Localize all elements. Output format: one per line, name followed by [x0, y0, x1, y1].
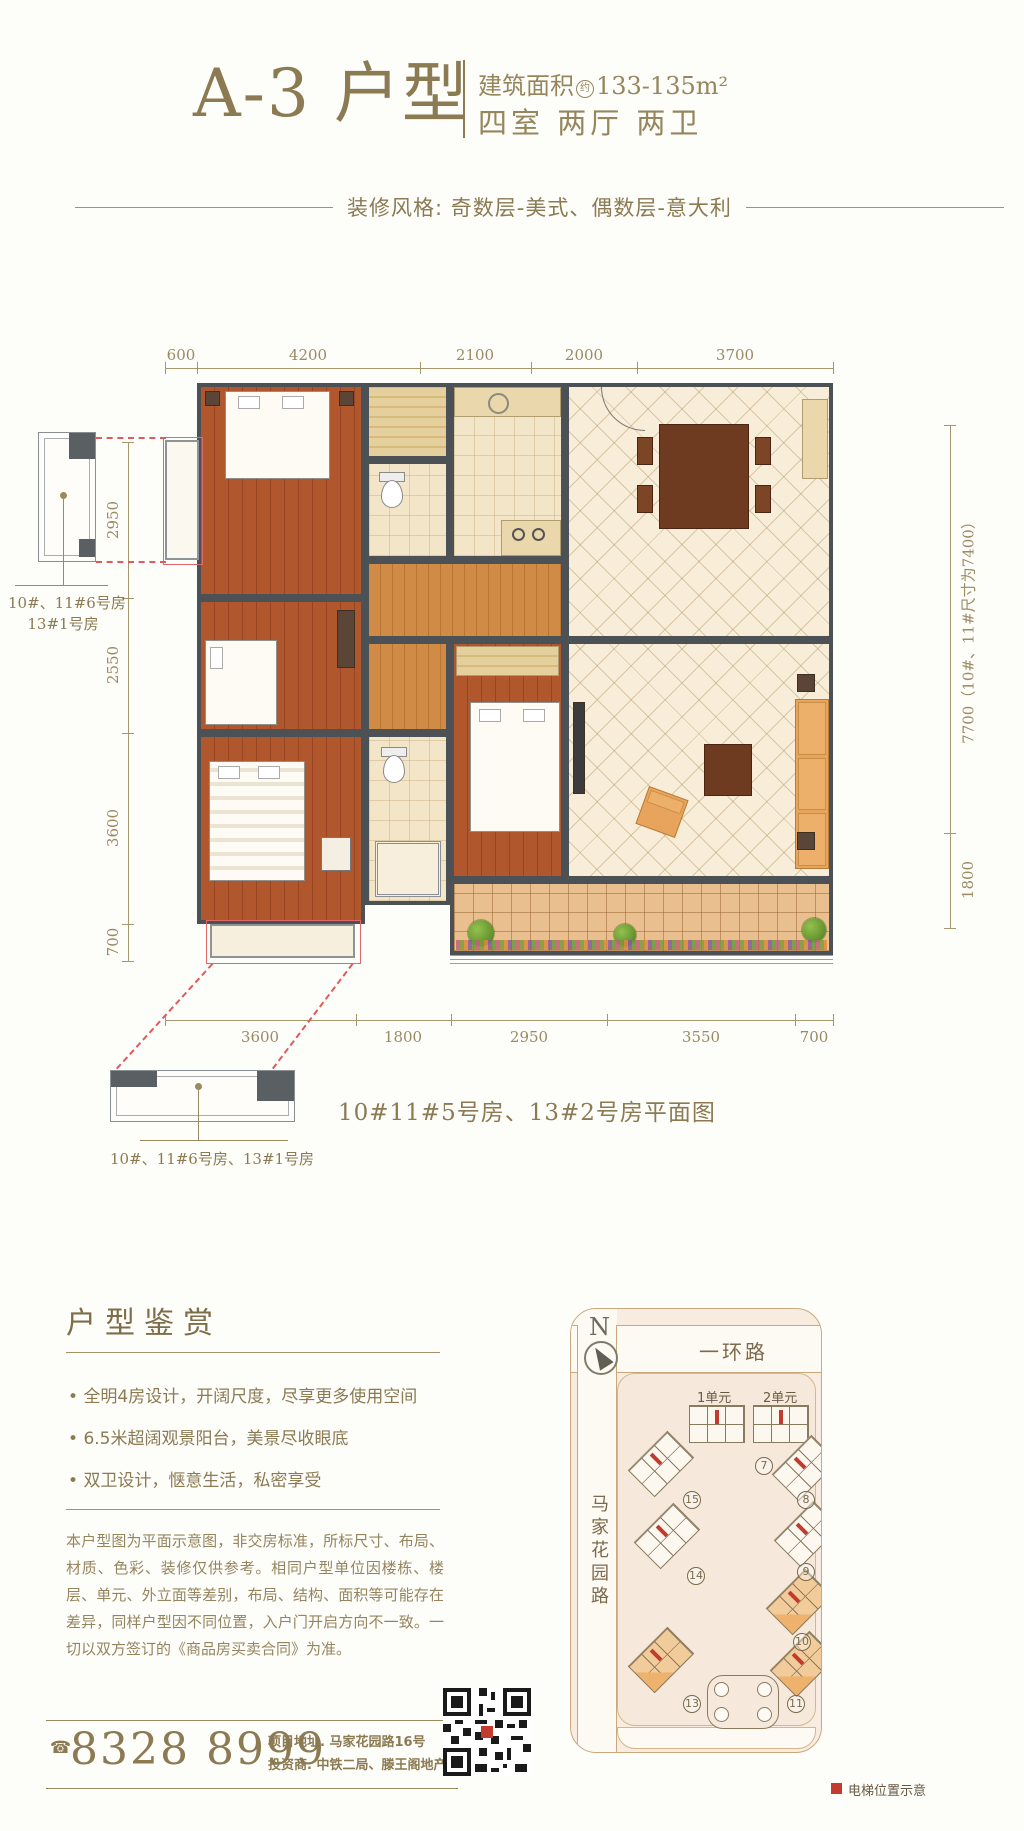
- section-rule: [66, 1509, 440, 1510]
- qr-code: [443, 1688, 531, 1776]
- style-row: 装修风格: 奇数层-美式、偶数层-意大利: [75, 192, 1004, 222]
- pillow: [258, 766, 280, 779]
- terrace: [450, 880, 833, 955]
- bedroom-3: [197, 733, 365, 924]
- road-bottom: [617, 1727, 816, 1749]
- sketch-pointer-line: [198, 1090, 199, 1140]
- dim-label: 3600: [104, 809, 122, 847]
- desk: [321, 837, 351, 871]
- dim-label: 3600: [241, 1028, 279, 1046]
- header-divider: [463, 60, 465, 138]
- north-label: N: [589, 1313, 610, 1341]
- building-number: 8: [797, 1491, 815, 1509]
- bed: [470, 702, 560, 832]
- contact-rule-top: [46, 1720, 458, 1721]
- dining-room: [565, 383, 833, 640]
- red-dashed-line: [96, 561, 166, 563]
- dim-tick: [420, 362, 421, 374]
- unit-label-2: 2单元: [763, 1387, 797, 1406]
- dim-label: 2000: [565, 346, 603, 364]
- dim-line-right: [950, 425, 951, 928]
- dining-table: [659, 424, 749, 529]
- sketch-pointer-line: [15, 585, 108, 586]
- dim-label: 1800: [384, 1028, 422, 1046]
- sketch-block: [111, 1071, 157, 1087]
- site-map: N 一环路 马家花园路 1单元 2单元 7 15 8 14 9 10 13 11: [570, 1308, 822, 1753]
- compass-icon: [584, 1341, 618, 1375]
- feature-bullet: 全明4房设计，开阔尺度，尽享更多使用空间: [68, 1382, 417, 1407]
- building-cluster-7b: [753, 1405, 809, 1443]
- closet: [365, 383, 450, 460]
- kitchen: [450, 383, 565, 560]
- dim-label: 7700（10#、11#尺寸为7400）: [958, 514, 979, 744]
- unit-label-1: 1单元: [697, 1387, 731, 1406]
- cabinet: [802, 399, 828, 479]
- approx-circle: 约: [576, 80, 594, 98]
- dim-tick: [833, 362, 834, 374]
- chair: [755, 485, 771, 513]
- sketch-pointer-line: [63, 499, 64, 585]
- rooms-line: 四室 两厅 两卫: [478, 100, 702, 142]
- sketch-label-line: 10#、11#6号房: [8, 592, 118, 613]
- dim-tick: [197, 362, 198, 374]
- living-room: [565, 640, 833, 880]
- dim-label: 1800: [959, 861, 977, 899]
- area-value: 133-135m²: [596, 72, 728, 100]
- sink-icon: [488, 393, 509, 414]
- side-table: [797, 674, 815, 692]
- dim-label: 2100: [456, 346, 494, 364]
- building-number: 9: [797, 1563, 815, 1581]
- dim-label: 2550: [104, 646, 122, 684]
- bay-section-sketch-left: [38, 432, 96, 562]
- dim-tick: [944, 425, 956, 426]
- chair: [755, 437, 771, 465]
- tv-cabinet: [573, 702, 585, 794]
- club-circle: [714, 1682, 729, 1697]
- disclaimer-text: 本户型图为平面示意图，非交房标准，所标尺寸、布局、材质、色彩、装修仅供参考。相同…: [66, 1528, 444, 1663]
- dim-tick: [122, 924, 134, 925]
- plant-icon: [802, 918, 826, 942]
- red-dashed-line: [272, 963, 354, 1069]
- pillow: [523, 709, 545, 722]
- dim-line-top: [165, 368, 833, 369]
- red-dashed-line: [96, 437, 166, 439]
- dim-line-left: [128, 442, 129, 961]
- dim-tick: [833, 1014, 834, 1026]
- dim-label: 2950: [510, 1028, 548, 1046]
- sketch-block: [69, 433, 95, 459]
- building-number: 15: [683, 1491, 701, 1509]
- address-line: 投资商. 中铁二局、滕王阁地产: [268, 1754, 446, 1773]
- plan-caption: 10#11#5号房、13#2号房平面图: [338, 1093, 716, 1127]
- flyer-page: A-3 户型 建筑面积约133-135m² 四室 两厅 两卫 装修风格: 奇数层…: [0, 0, 1024, 1831]
- toilet: [383, 755, 405, 783]
- dim-label: 3700: [716, 346, 754, 364]
- wardrobe: [456, 646, 559, 676]
- dim-line-bottom: [165, 1020, 833, 1021]
- page-title: A-3 户型: [193, 40, 470, 136]
- dim-tick: [122, 733, 134, 734]
- coffee-table: [704, 744, 752, 796]
- red-dashed-line: [116, 963, 213, 1069]
- flower-border: [456, 940, 827, 950]
- hallway-2: [365, 640, 450, 733]
- bedroom-2: [197, 598, 365, 733]
- area-label: 建筑面积: [478, 72, 574, 100]
- club-circle: [714, 1707, 729, 1722]
- bedroom-master: [197, 383, 365, 598]
- dim-tick: [607, 1014, 608, 1026]
- dim-label: 3550: [682, 1028, 720, 1046]
- building-number: 10: [793, 1633, 811, 1651]
- dim-tick: [122, 961, 134, 962]
- bay-highlight-bottom: [206, 920, 361, 964]
- pillow: [479, 709, 501, 722]
- hallway: [365, 560, 565, 640]
- building-number: 13: [683, 1695, 701, 1713]
- dim-label: 4200: [289, 346, 327, 364]
- dim-tick: [451, 1014, 452, 1026]
- bed: [205, 640, 277, 725]
- dim-tick: [531, 362, 532, 374]
- dim-label: 700: [800, 1028, 829, 1046]
- sketch-block: [257, 1071, 294, 1101]
- shower: [375, 841, 441, 897]
- style-line-left: [75, 207, 333, 208]
- bathroom-2: [365, 733, 450, 905]
- armchair: [635, 786, 688, 838]
- sketch-label-line: 13#1号房: [8, 613, 118, 634]
- feature-bullet: 双卫设计，惬意生活，私密享受: [68, 1466, 321, 1491]
- dim-tick: [356, 1014, 357, 1026]
- area-line: 建筑面积约133-135m²: [478, 66, 728, 101]
- building-cluster-7a: [689, 1405, 745, 1443]
- bedroom-4: [450, 640, 565, 880]
- club-circle: [757, 1707, 772, 1722]
- elevator-legend-text: 电梯位置示意: [848, 1780, 926, 1799]
- toilet: [381, 480, 403, 508]
- pillow: [282, 396, 304, 409]
- sketch-marker-dot: [195, 1083, 202, 1090]
- bathroom-1: [365, 460, 450, 560]
- dim-label: 700: [104, 928, 122, 957]
- stove-burner-icon: [532, 528, 545, 541]
- sketch-block: [79, 539, 95, 557]
- club-circle: [757, 1682, 772, 1697]
- dim-label: 2950: [104, 501, 122, 539]
- sketch-marker-dot: [60, 492, 67, 499]
- dim-tick: [944, 833, 956, 834]
- nightstand: [339, 391, 354, 406]
- chair: [637, 437, 653, 465]
- dresser: [337, 610, 355, 668]
- address-line: 项目地址. 马家花园路16号: [268, 1731, 426, 1750]
- road-left-label: 马家花园路: [585, 1494, 611, 1609]
- contact-rule-bottom: [46, 1788, 458, 1789]
- kitchen-counter-2: [501, 520, 561, 556]
- elevator-legend-icon: [831, 1783, 842, 1794]
- sketch-label: 10#、11#6号房、13#1号房: [110, 1148, 295, 1169]
- building-number: 7: [755, 1457, 773, 1475]
- dim-tick: [122, 442, 134, 443]
- building-number: 14: [687, 1567, 705, 1585]
- sketch-label: 10#、11#6号房 13#1号房: [8, 592, 118, 634]
- compass-needle: [588, 1343, 613, 1370]
- bay-highlight-left: [163, 437, 203, 565]
- pillow: [210, 647, 223, 669]
- style-text: 装修风格: 奇数层-美式、偶数层-意大利: [347, 192, 732, 222]
- dim-label: 600: [167, 346, 196, 364]
- clubhouse: [707, 1675, 779, 1729]
- building-number: 11: [787, 1695, 805, 1713]
- nightstand: [205, 391, 220, 406]
- stove-burner-icon: [512, 528, 525, 541]
- appreciation-heading: 户型鉴赏: [66, 1298, 222, 1342]
- pillow: [218, 766, 240, 779]
- feature-bullet: 6.5米超阔观景阳台，美景尽收眼底: [68, 1424, 348, 1449]
- door-arc: [601, 387, 645, 431]
- terrace-railing: [450, 955, 833, 964]
- bed: [225, 391, 330, 479]
- heading-rule: [66, 1352, 440, 1353]
- pillow: [238, 396, 260, 409]
- sketch-pointer-line: [140, 1140, 288, 1141]
- dim-tick: [795, 1014, 796, 1026]
- style-line-right: [746, 207, 1004, 208]
- road-top-label: 一环路: [699, 1336, 768, 1365]
- chair: [637, 485, 653, 513]
- bed: [209, 761, 305, 881]
- bay-section-sketch-bottom: [110, 1070, 295, 1122]
- side-table: [797, 832, 815, 850]
- phone-icon: ☎: [50, 1738, 71, 1758]
- dim-tick: [944, 928, 956, 929]
- dim-tick: [637, 362, 638, 374]
